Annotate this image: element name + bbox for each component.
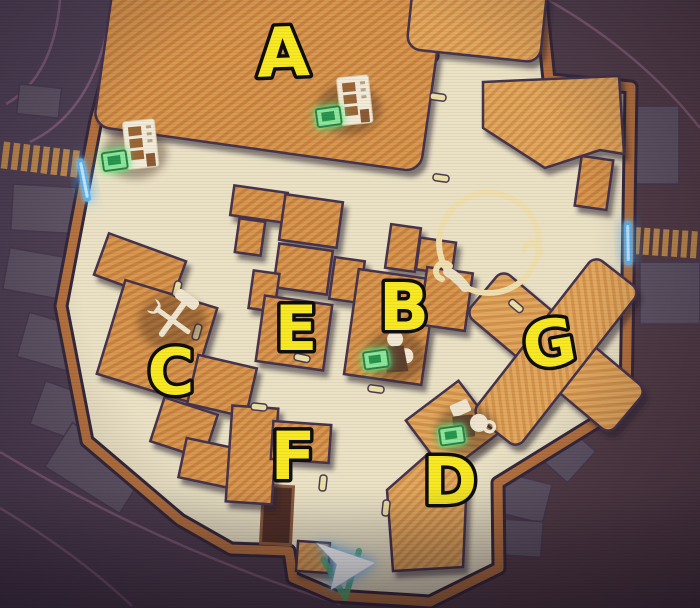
map-marker-c[interactable]: C [148, 336, 195, 410]
game-minimap: A B C D E F G [0, 0, 700, 608]
minimap-canvas: A B C D E F G [0, 0, 700, 608]
exit-marker-east[interactable] [624, 221, 632, 265]
map-marker-e[interactable]: E [275, 292, 317, 365]
map-marker-a[interactable]: A [255, 13, 311, 94]
map-marker-f[interactable]: F [270, 418, 315, 495]
map-marker-d[interactable]: D [423, 443, 478, 520]
building-east-small [575, 156, 614, 210]
map-marker-b[interactable]: B [379, 269, 429, 346]
